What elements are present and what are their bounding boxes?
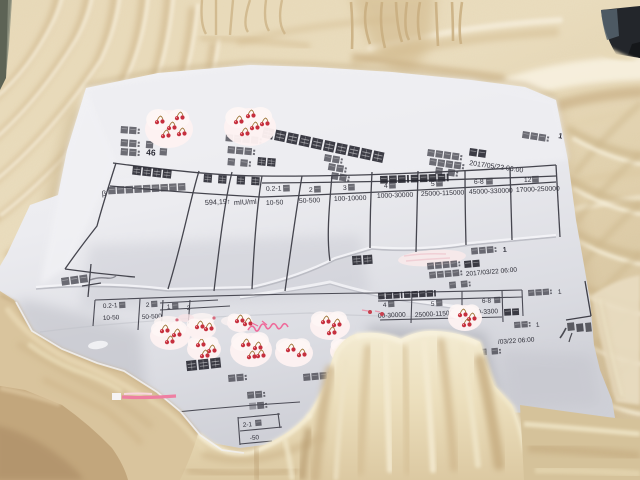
svg-text:5: 5 <box>431 181 435 188</box>
svg-text:4: 4 <box>384 183 388 190</box>
svg-text:12: 12 <box>524 177 532 184</box>
svg-text:mIU/ml: mIU/ml <box>234 197 258 207</box>
svg-text:50-500: 50-500 <box>299 197 321 205</box>
svg-text:1: 1 <box>503 247 508 254</box>
svg-text:10-50: 10-50 <box>266 199 284 207</box>
svg-text:2-1: 2-1 <box>243 421 253 429</box>
svg-text:-50: -50 <box>250 434 260 442</box>
svg-text:0.2-1: 0.2-1 <box>266 185 282 193</box>
svg-text:0.2-1: 0.2-1 <box>103 302 118 310</box>
svg-text:2: 2 <box>309 187 313 194</box>
svg-text:10-50: 10-50 <box>103 314 120 322</box>
svg-text:1000-30000: 1000-30000 <box>377 192 414 200</box>
svg-text:3: 3 <box>343 185 347 192</box>
svg-text:6-8: 6-8 <box>482 298 492 305</box>
svg-text:46: 46 <box>146 147 156 158</box>
svg-text:100-10000: 100-10000 <box>334 195 367 203</box>
svg-text:594,19↑: 594,19↑ <box>205 197 231 207</box>
svg-text:6-8: 6-8 <box>474 179 484 186</box>
